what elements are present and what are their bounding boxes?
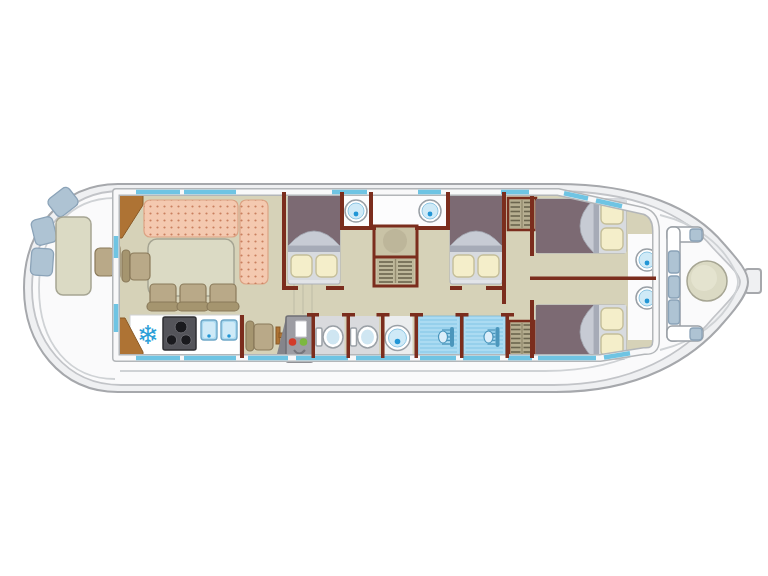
stove-burner-icon	[175, 321, 187, 333]
bench-cushion	[669, 251, 680, 273]
central-wardrobe	[374, 226, 417, 286]
dining-chair	[207, 284, 239, 311]
bench-cushion	[669, 276, 680, 298]
bench-cushion	[690, 229, 702, 241]
green-indicator-icon	[300, 338, 308, 346]
washbasin-icon	[419, 200, 441, 222]
l-sofa-pattern	[144, 200, 238, 237]
sink-drain-icon	[207, 334, 211, 338]
deck-table	[56, 217, 91, 295]
cabin-mid-2	[450, 196, 502, 284]
washbasin-icon	[385, 326, 410, 351]
red-indicator-icon	[289, 338, 297, 346]
galley-chair	[246, 321, 273, 351]
sink-drain-icon	[227, 334, 231, 338]
dining-chair	[122, 250, 150, 282]
dining-chair	[147, 284, 179, 311]
bow-cabin-partition	[530, 277, 656, 281]
seat-cushion	[30, 248, 54, 276]
bench-cushion	[669, 300, 680, 324]
washbasin-icon	[345, 200, 367, 222]
freezer-snowflake-icon: ❄	[137, 320, 159, 350]
cabinet-top-surface	[383, 229, 407, 253]
panel-display	[296, 321, 307, 337]
vanity-rooms	[344, 192, 446, 230]
toilet-icon	[351, 326, 378, 348]
bow-table-highlight	[691, 265, 717, 291]
stove-burner-icon	[181, 335, 191, 345]
bench-cushion	[690, 328, 702, 340]
shower-room	[464, 316, 506, 358]
stove-burner-icon	[166, 335, 176, 345]
galley-sink	[201, 320, 217, 340]
dining-chair	[177, 284, 209, 311]
cabin-mid-1	[288, 196, 340, 284]
toilet-icon	[316, 326, 343, 348]
boat-floor-plan: ❄	[0, 0, 768, 576]
l-sofa-pattern	[240, 200, 268, 284]
galley-divider-wall	[240, 315, 244, 358]
stove	[163, 317, 196, 350]
double-bed	[450, 196, 502, 284]
galley-sink	[221, 320, 237, 340]
cabin-bow-2	[536, 305, 626, 359]
bathrooms	[315, 316, 506, 358]
double-bed	[536, 305, 626, 359]
double-bed	[288, 196, 340, 284]
shower-room	[418, 316, 460, 358]
